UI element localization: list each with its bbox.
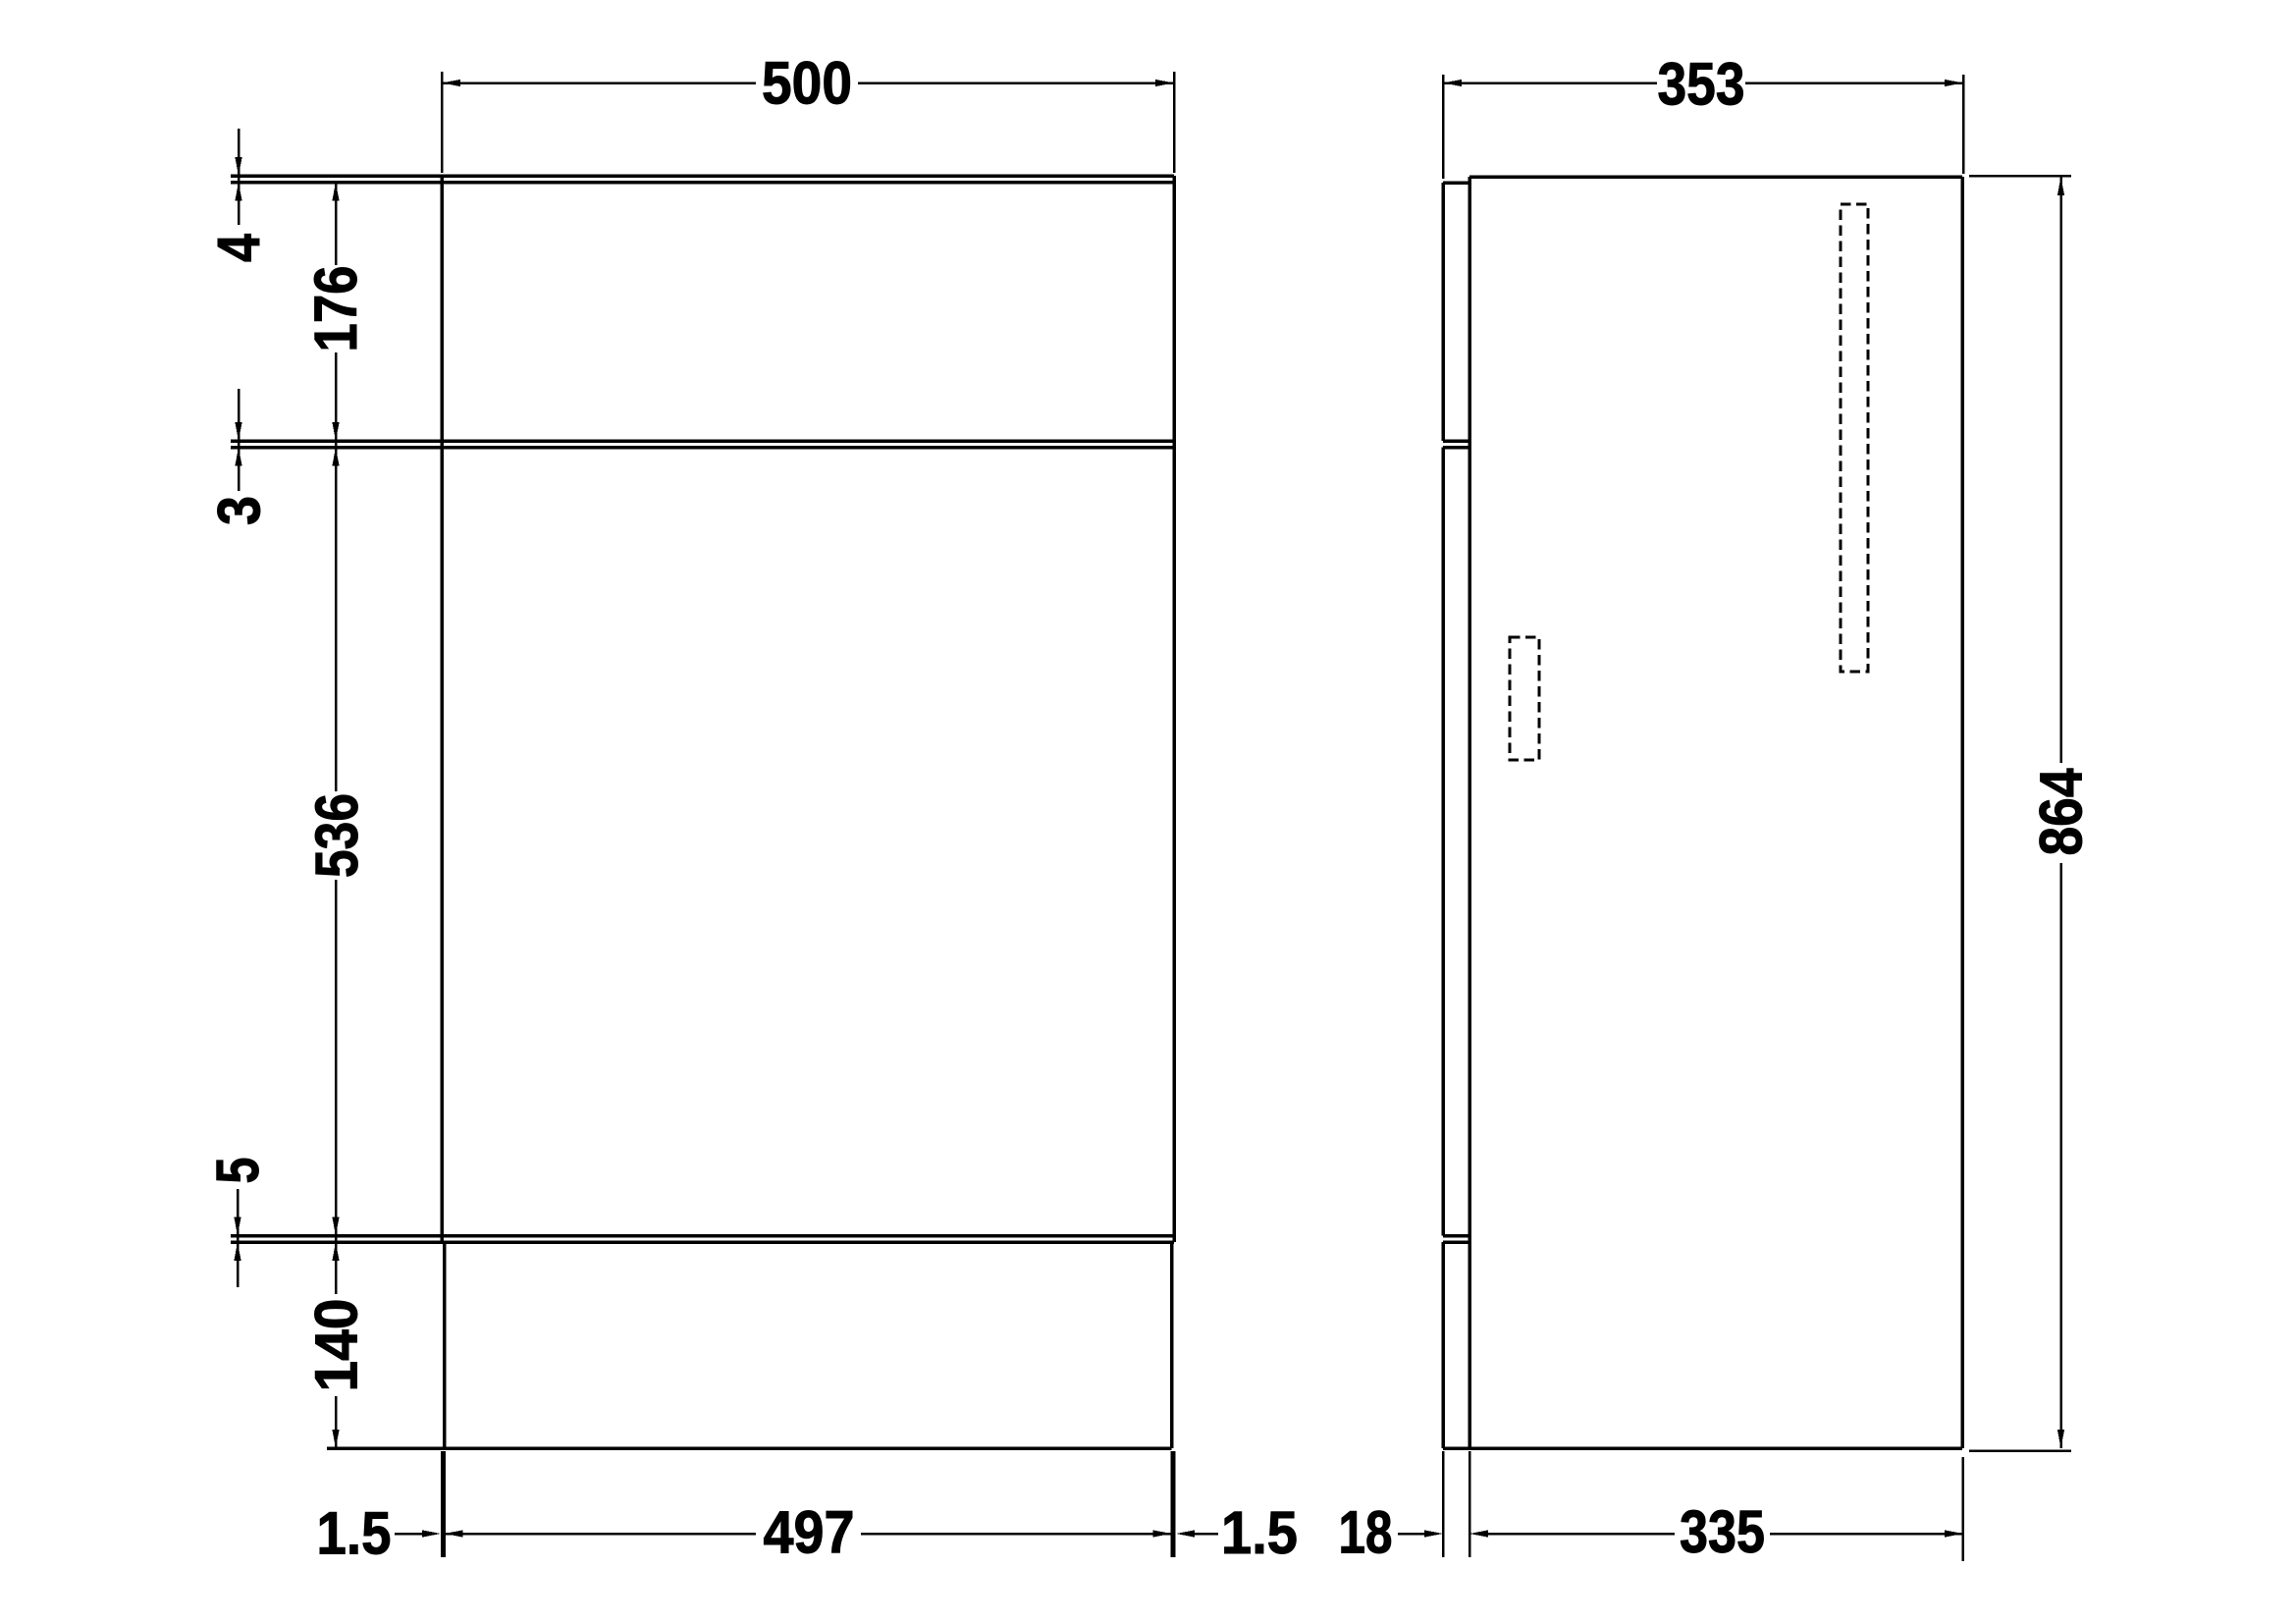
svg-text:3: 3 [206,496,273,525]
svg-text:140: 140 [303,1299,370,1392]
svg-text:1.5: 1.5 [1221,1499,1298,1566]
svg-text:500: 500 [762,50,852,117]
svg-text:497: 497 [764,1499,855,1566]
svg-text:4: 4 [205,234,272,262]
svg-text:1.5: 1.5 [317,1500,392,1567]
svg-text:176: 176 [302,266,369,352]
svg-text:536: 536 [303,793,370,878]
svg-text:335: 335 [1680,1498,1765,1565]
svg-text:5: 5 [204,1158,271,1184]
svg-text:864: 864 [2028,768,2095,855]
svg-text:353: 353 [1658,51,1745,118]
svg-text:18: 18 [1339,1499,1393,1566]
